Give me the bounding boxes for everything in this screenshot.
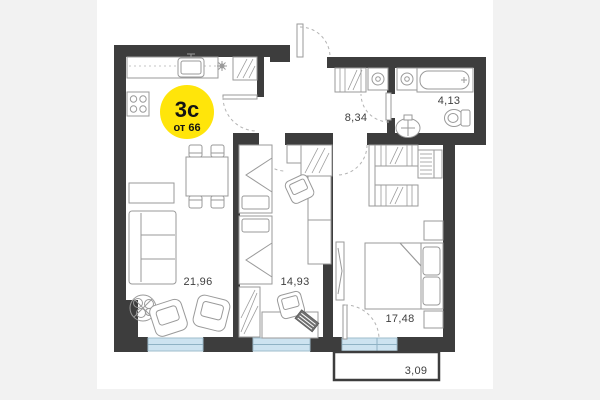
nightstand-symbol xyxy=(424,221,443,240)
area-label-living: 21,96 xyxy=(183,276,212,288)
wall-hall-left xyxy=(257,57,264,97)
entry-wardrobe-symbol xyxy=(233,57,257,80)
hall-wardrobe-symbol xyxy=(335,68,366,92)
washing-machine-symbol xyxy=(368,68,388,90)
chair-symbol xyxy=(189,196,202,208)
toilet-symbol xyxy=(445,110,471,127)
wardrobe-symbol xyxy=(375,145,418,166)
balcony-door xyxy=(343,305,347,339)
area-label-middle-bedroom: 14,93 xyxy=(280,276,309,288)
floor-plan: 21,96 14,93 8,34 4,13 17,48 3,09 3с от 6… xyxy=(0,0,600,400)
closet-side-panel xyxy=(369,145,375,206)
wardrobe-symbol xyxy=(375,185,418,206)
wall-top-left xyxy=(114,45,290,57)
wall-right-upper xyxy=(474,57,486,145)
area-label-hallway: 8,34 xyxy=(345,112,368,124)
area-label-balcony: 3,09 xyxy=(405,365,428,377)
bathtub-symbol xyxy=(417,68,473,92)
chair-symbol xyxy=(189,145,202,157)
vent-symbol xyxy=(217,61,227,71)
nightstand-symbol xyxy=(424,311,443,328)
tv-bench-symbol xyxy=(129,183,174,203)
wall-bath-bottom xyxy=(367,133,474,145)
single-bed-symbol xyxy=(239,216,272,284)
unit-badge-price-from: от 66 xyxy=(173,122,200,134)
unit-badge: 3с от 66 xyxy=(160,85,214,139)
hallway-furniture xyxy=(335,68,388,92)
sofa-symbol xyxy=(129,211,176,284)
windows xyxy=(148,338,397,351)
wardrobe-symbol xyxy=(239,287,260,337)
wall-bottom-1 xyxy=(114,337,148,352)
washing-machine-symbol xyxy=(397,68,417,90)
bathroom-door xyxy=(386,93,391,120)
stove-symbol xyxy=(127,92,149,116)
living-door xyxy=(223,95,257,99)
wall-bottom-2 xyxy=(203,337,253,352)
unit-badge-rooms: 3с xyxy=(175,97,199,122)
area-label-bathroom: 4,13 xyxy=(438,95,461,107)
wall-right-lower xyxy=(443,133,455,352)
wall-entry-jamb xyxy=(270,45,290,62)
mirror-symbol xyxy=(336,242,344,300)
chair-symbol xyxy=(211,196,224,208)
single-bed-symbol xyxy=(239,145,272,213)
floor-plan-page: 21,96 14,93 8,34 4,13 17,48 3,09 3с от 6… xyxy=(0,0,600,400)
area-label-master-bedroom: 17,48 xyxy=(385,313,414,325)
entrance-door xyxy=(297,24,303,57)
double-bed-symbol xyxy=(365,243,443,309)
wall-bottom-4 xyxy=(397,337,455,352)
dresser-symbol xyxy=(418,150,442,178)
wall-top-right xyxy=(327,57,486,68)
chair-symbol xyxy=(211,145,224,157)
